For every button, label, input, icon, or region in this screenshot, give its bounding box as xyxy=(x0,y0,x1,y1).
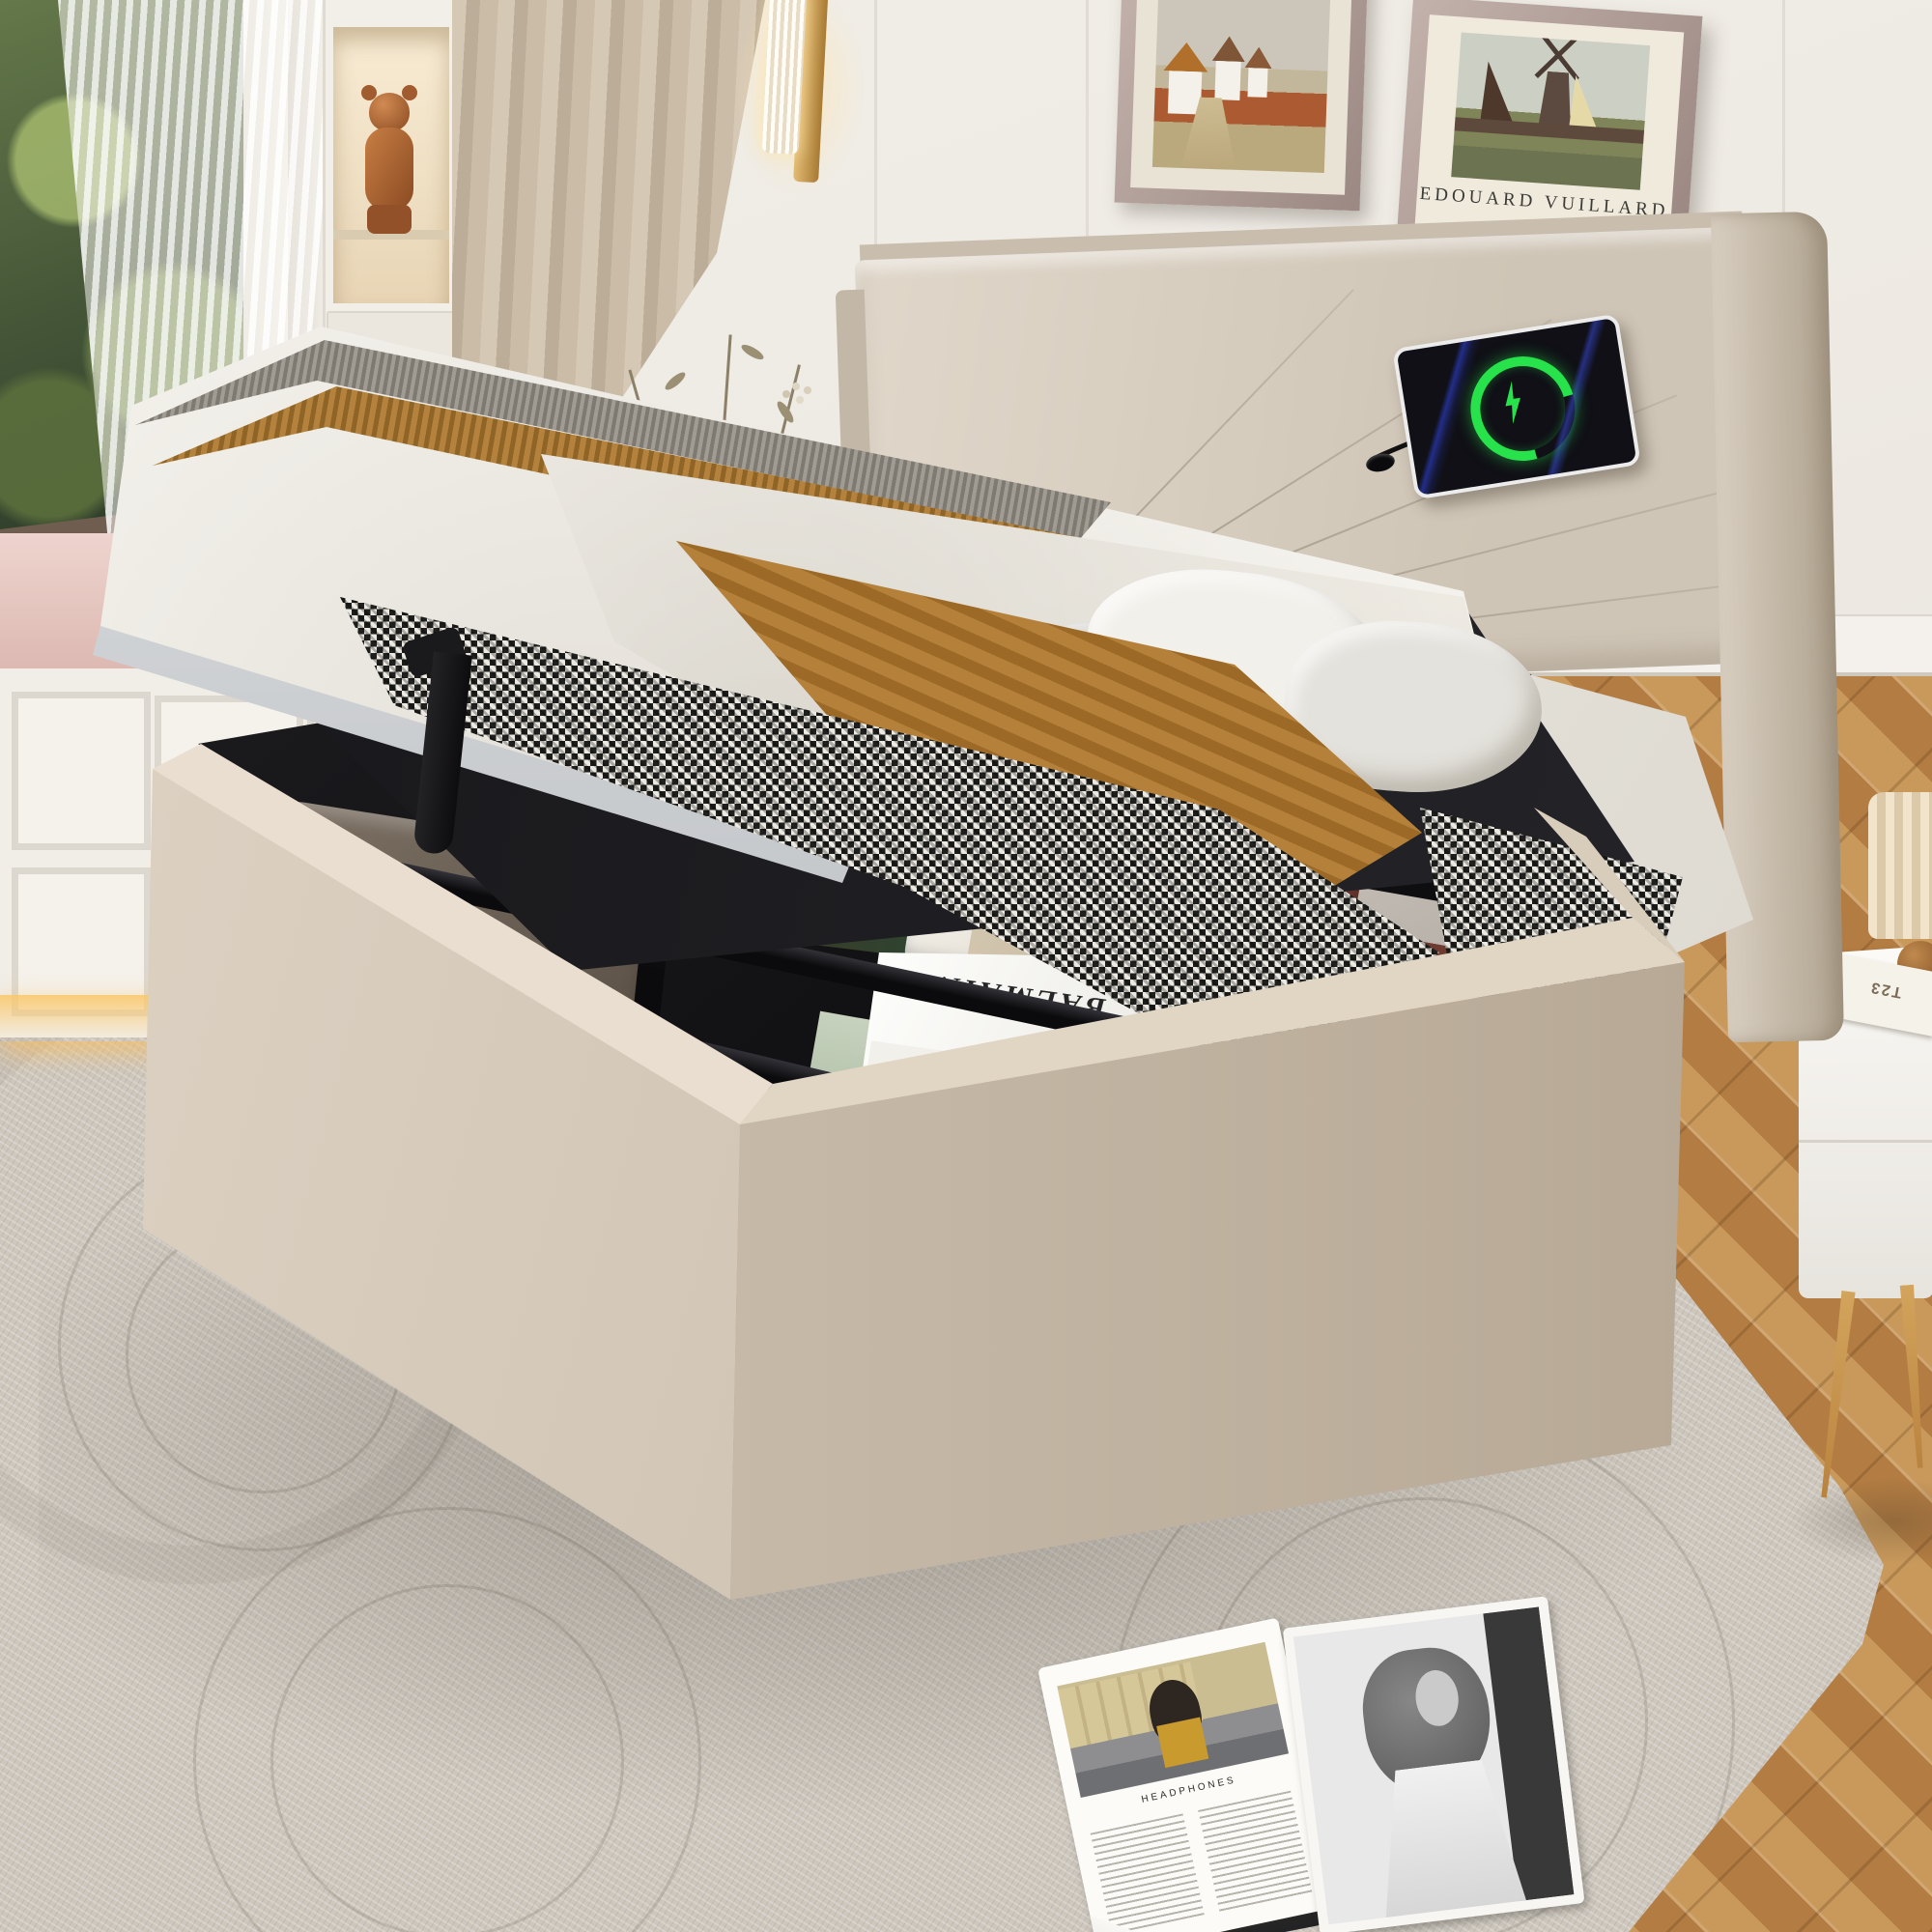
flower-leaf xyxy=(739,342,765,362)
cream-sail-boat xyxy=(1569,75,1602,131)
article-text-column xyxy=(1091,1813,1205,1932)
open-fashion-magazine: HEADPHONES xyxy=(1047,1597,1596,1932)
flower-bloom xyxy=(792,383,800,390)
article-text-column xyxy=(1198,1791,1312,1913)
bedroom-product-photo: EDOUARD VUILLARD The painter of the Fren… xyxy=(0,0,1932,1932)
flower-leaf xyxy=(663,370,688,393)
bear-legs xyxy=(367,205,412,234)
nightstand-shadow xyxy=(1787,1478,1932,1565)
painted-roof xyxy=(1212,36,1246,62)
bear-head xyxy=(369,93,410,131)
painted-roof xyxy=(1245,46,1273,69)
bronze-bear-figurine xyxy=(355,93,423,238)
dark-sail-boat xyxy=(1480,61,1517,123)
photo-model-top xyxy=(1156,1717,1208,1768)
painted-house xyxy=(1247,64,1267,98)
bear-body xyxy=(365,128,413,211)
framed-village-painting xyxy=(1115,0,1369,211)
pleated-table-lamp xyxy=(1868,792,1932,939)
cabinet-panel xyxy=(12,867,151,1016)
windmill xyxy=(1538,71,1575,130)
painted-roof xyxy=(1163,42,1208,72)
book-spine-text: T23 xyxy=(1840,972,1931,1006)
windmill-painting xyxy=(1451,32,1650,189)
village-painting xyxy=(1152,0,1330,173)
cabinet-panel xyxy=(12,692,151,850)
black-and-white-portrait xyxy=(1293,1606,1575,1924)
wall-sconce-lamp xyxy=(760,0,838,191)
painted-house xyxy=(1168,67,1203,114)
painted-house xyxy=(1214,57,1241,100)
nightstand-drawer-seam xyxy=(1799,1140,1932,1143)
magazine-right-page xyxy=(1283,1596,1585,1932)
